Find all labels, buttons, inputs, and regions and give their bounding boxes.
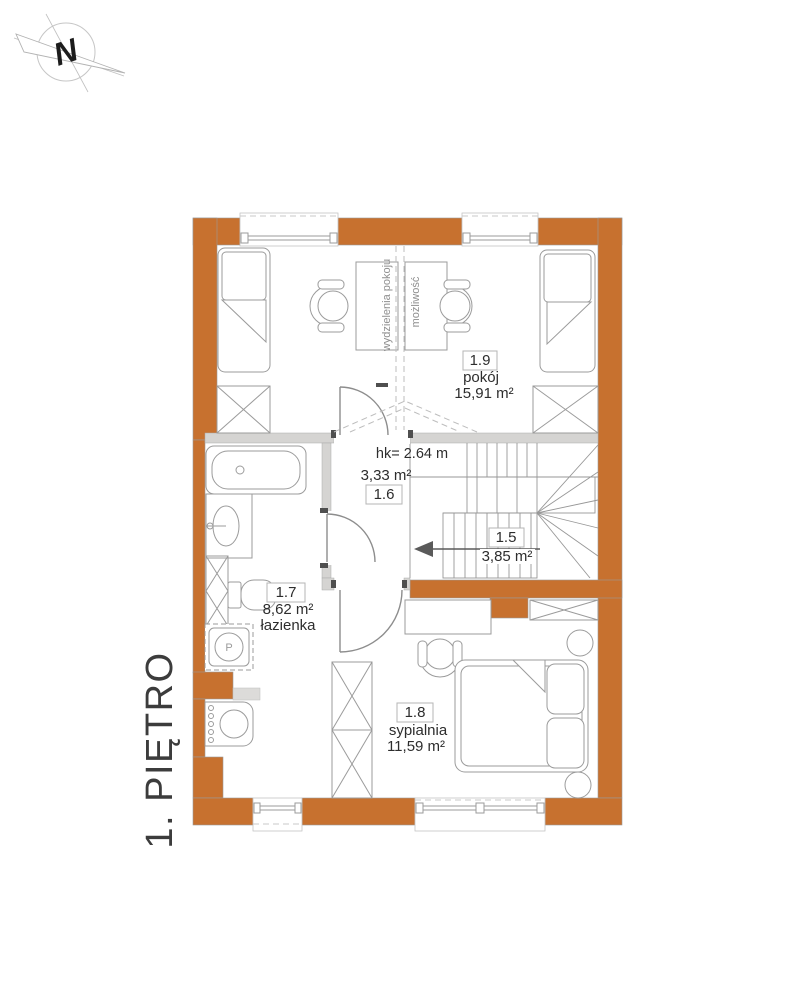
wall-left-stub — [193, 672, 233, 699]
doors — [320, 383, 413, 652]
wall-bath-hall-upper — [322, 443, 331, 512]
room-area-1-7: 8,62 m² — [263, 601, 314, 618]
bathtub — [206, 446, 306, 494]
bed-single-right — [540, 250, 595, 372]
wall-left-upper — [193, 218, 217, 440]
bedside-table-top — [567, 630, 593, 656]
door-bathroom — [320, 508, 375, 568]
wall-top-2 — [338, 218, 462, 245]
room-1-9-furniture: wydzielenia pokoju możliwość — [217, 246, 598, 433]
office-chair-right — [440, 280, 472, 332]
room-number-1-7: 1.7 — [276, 584, 297, 601]
wall-left-mid — [193, 440, 205, 673]
wardrobe-bedroom-tall — [332, 662, 372, 798]
room-number-1-5: 1.5 — [496, 529, 517, 546]
room-number-1-8: 1.8 — [405, 704, 426, 721]
stair-winder-fan — [537, 445, 598, 578]
wall-bottom-2 — [302, 798, 415, 825]
wall-stairs-bedroom — [410, 580, 622, 598]
room-number-1-6: 1.6 — [374, 486, 395, 503]
division-note-left: wydzielenia pokoju — [381, 259, 393, 352]
wardrobe-bedroom-top — [530, 600, 598, 620]
wardrobe-top-right — [533, 386, 598, 433]
bedroom-furniture — [332, 600, 598, 798]
bed-single-left — [218, 248, 270, 372]
floor-title: 1. PIĘTRO — [139, 651, 181, 848]
height-note: hk= 2.64 m — [376, 446, 448, 462]
wall-mid-left — [205, 433, 334, 443]
room-area-1-6: 3,33 m² — [361, 467, 412, 484]
window-bedroom — [415, 798, 545, 831]
bedroom-desk — [405, 600, 491, 634]
floor-plan-page: N 1. PIĘTRO — [0, 0, 800, 1000]
wall-right — [598, 218, 622, 798]
wall-bottom-3 — [545, 798, 622, 825]
window-room-top-right — [462, 213, 538, 246]
compass: N — [14, 14, 125, 92]
wall-mid-right — [410, 433, 598, 443]
division-note-right: możliwość — [410, 276, 422, 327]
bedside-table-bottom — [565, 772, 591, 798]
room-name-1-7: łazienka — [260, 617, 316, 634]
wardrobe-top-left — [217, 386, 270, 433]
room-name-1-8: sypialnia — [389, 722, 448, 739]
room-name-1-9: pokój — [463, 369, 499, 386]
wall-bottom-1 — [193, 798, 253, 825]
washing-machine-p: P — [205, 624, 253, 670]
room-area-1-9: 15,91 m² — [454, 385, 513, 402]
dryer-machine — [205, 702, 253, 746]
room-area-1-5: 3,85 m² — [482, 548, 533, 565]
washer-p-label: P — [225, 642, 232, 654]
room-number-1-9: 1.9 — [470, 352, 491, 369]
duct-shaft — [206, 556, 228, 626]
compass-north-letter: N — [49, 31, 83, 73]
floor-plan-drawing: N 1. PIĘTRO — [0, 0, 800, 1000]
double-bed — [455, 660, 588, 772]
wall-left-corner — [193, 757, 223, 798]
wall-left-lower — [193, 699, 205, 757]
office-chair-left — [310, 280, 348, 332]
wall-bedroom-stub — [490, 598, 528, 618]
stair-risers-upper — [467, 443, 537, 513]
door-room-1-9 — [331, 383, 413, 444]
room-area-1-8: 11,59 m² — [387, 738, 445, 755]
bathroom-ledge — [233, 688, 260, 700]
window-bathroom — [253, 798, 302, 831]
washbasin — [206, 494, 252, 558]
door-bedroom — [331, 580, 407, 652]
window-room-top-left — [240, 213, 338, 246]
